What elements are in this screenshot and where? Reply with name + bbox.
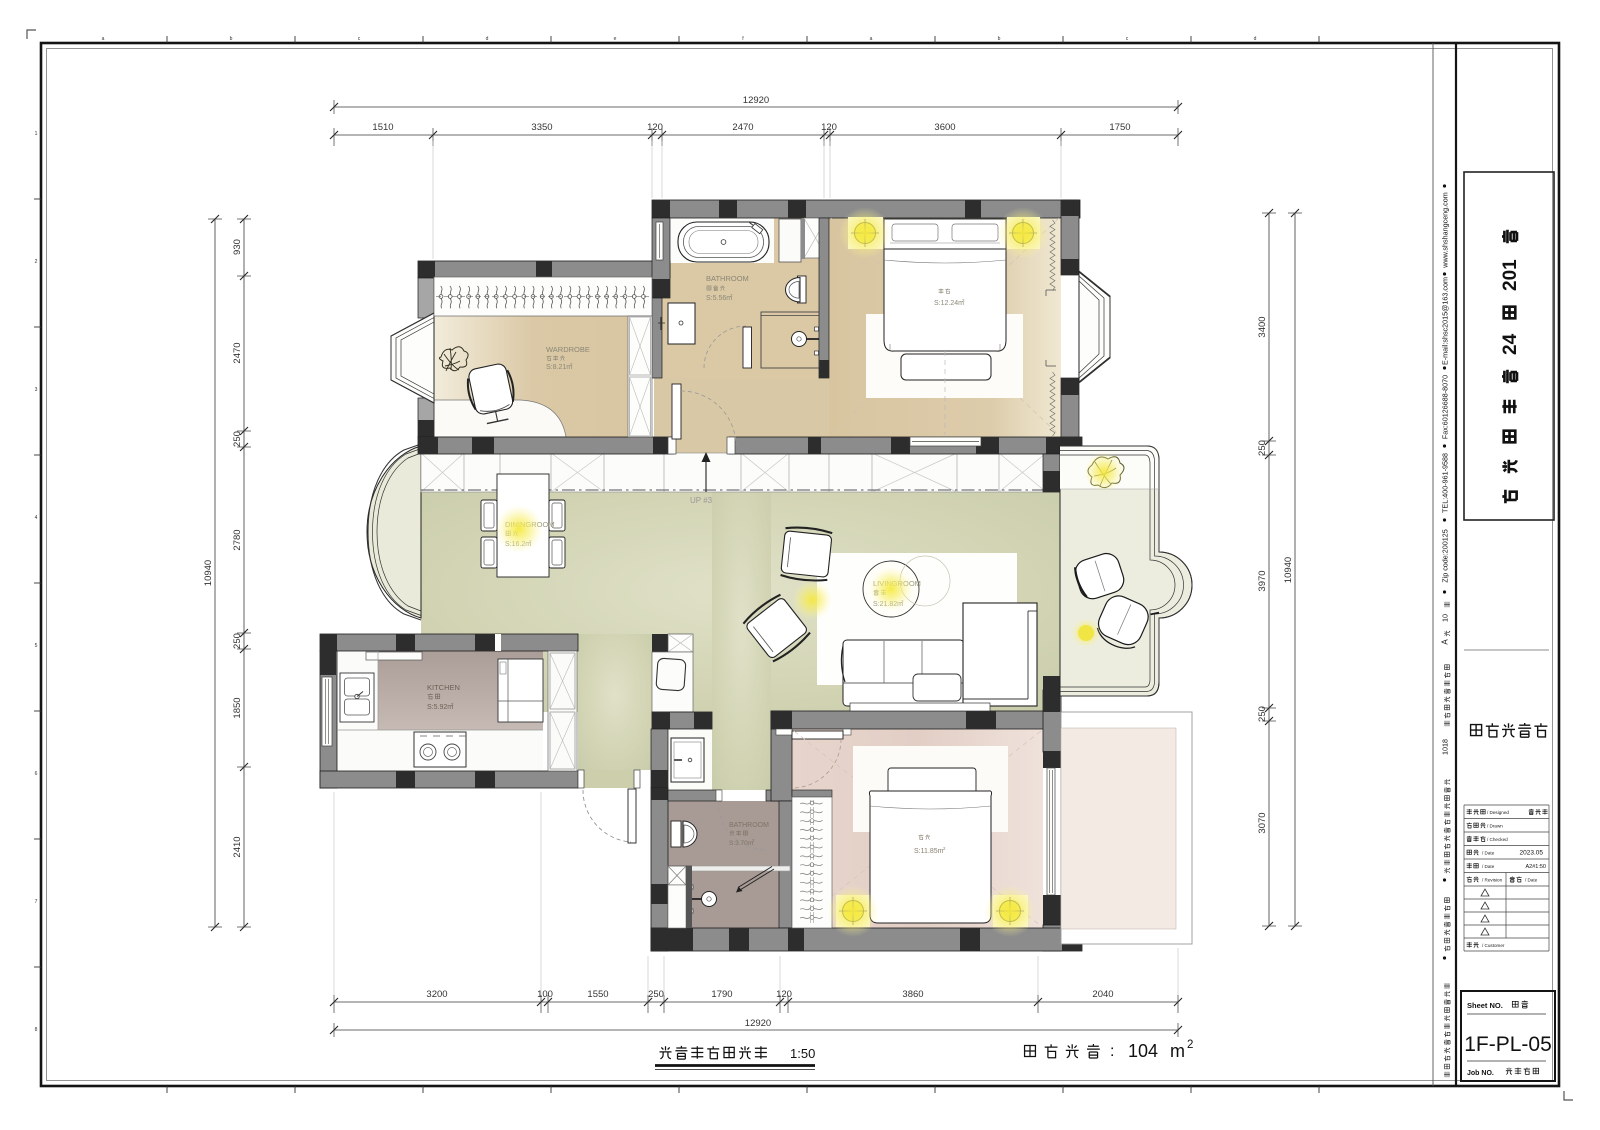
svg-text:2470: 2470 — [232, 342, 243, 363]
svg-text:2410: 2410 — [232, 836, 243, 857]
svg-text:S:5.92m: S:5.92m — [427, 704, 453, 711]
svg-text:A2#1:50: A2#1:50 — [1526, 864, 1547, 870]
svg-text:/ Revision: / Revision — [1482, 878, 1503, 883]
svg-text:A: A — [1441, 639, 1450, 645]
svg-text:3070: 3070 — [1257, 812, 1268, 833]
svg-text:10940: 10940 — [1283, 557, 1294, 583]
svg-text:/ Designed: / Designed — [1487, 810, 1509, 815]
svg-text:S:8.21m: S:8.21m — [546, 364, 572, 371]
svg-text:12920: 12920 — [743, 95, 769, 106]
svg-text:2023.05: 2023.05 — [1520, 850, 1544, 857]
svg-text:1850: 1850 — [232, 697, 243, 718]
svg-text:2780: 2780 — [232, 529, 243, 550]
svg-text:1550: 1550 — [587, 989, 608, 1000]
svg-text:104: 104 — [1128, 1041, 1158, 1061]
svg-text:S:12.24m: S:12.24m — [934, 300, 964, 307]
svg-text:/ Date: / Date — [1482, 864, 1495, 869]
svg-text:6: 6 — [35, 771, 38, 777]
svg-text:24: 24 — [1500, 333, 1521, 355]
svg-text:930: 930 — [232, 239, 243, 255]
svg-text:/ Drawn: / Drawn — [1487, 824, 1503, 829]
svg-text:S:5.56m: S:5.56m — [706, 295, 732, 302]
svg-text:1510: 1510 — [372, 122, 393, 133]
svg-text:WARDROBE: WARDROBE — [546, 345, 590, 354]
svg-text:2470: 2470 — [732, 122, 753, 133]
svg-text:Job NO.: Job NO. — [1467, 1070, 1494, 1077]
svg-text:Zip code:200125: Zip code:200125 — [1441, 529, 1450, 583]
svg-text:1:50: 1:50 — [790, 1046, 815, 1061]
svg-text:1750: 1750 — [1109, 122, 1130, 133]
svg-text::: : — [1110, 1043, 1114, 1060]
svg-text:S:3.70m: S:3.70m — [729, 840, 753, 847]
svg-text:TEL:400-961-9588: TEL:400-961-9588 — [1441, 453, 1450, 513]
svg-text:4: 4 — [35, 515, 38, 521]
svg-text:b: b — [230, 36, 233, 42]
svg-text:100: 100 — [537, 989, 553, 1000]
svg-text:www.shshangceng.com: www.shshangceng.com — [1441, 192, 1450, 269]
svg-text:BATHROOM: BATHROOM — [706, 274, 749, 283]
svg-text:a: a — [870, 36, 873, 42]
svg-text:1: 1 — [35, 131, 38, 137]
svg-text:Fax:60126688-8070: Fax:60126688-8070 — [1441, 375, 1450, 439]
svg-text:S:11.85m: S:11.85m — [914, 848, 944, 855]
svg-text:b: b — [998, 36, 1001, 42]
svg-text:KITCHEN: KITCHEN — [427, 683, 460, 692]
svg-text:250: 250 — [1257, 706, 1268, 722]
svg-text:120: 120 — [821, 122, 837, 133]
svg-text:1790: 1790 — [711, 989, 732, 1000]
svg-text:d: d — [486, 36, 489, 42]
svg-text:10940: 10940 — [203, 560, 214, 586]
svg-text:a: a — [102, 36, 105, 42]
svg-text:3350: 3350 — [531, 122, 552, 133]
svg-text:/ Date: / Date — [1525, 878, 1538, 883]
svg-text:e: e — [614, 36, 617, 42]
svg-text:3600: 3600 — [934, 122, 955, 133]
svg-text:2: 2 — [35, 259, 38, 265]
svg-text:2: 2 — [1187, 1039, 1193, 1051]
svg-text:1018: 1018 — [1441, 739, 1450, 755]
svg-text:120: 120 — [647, 122, 663, 133]
svg-text:UP #3: UP #3 — [690, 496, 713, 505]
svg-text:8: 8 — [35, 1027, 38, 1033]
svg-text:/ Checked: / Checked — [1487, 837, 1508, 842]
svg-text:2040: 2040 — [1092, 989, 1113, 1000]
svg-text:1F-PL-05: 1F-PL-05 — [1464, 1033, 1552, 1056]
svg-text:E-mail:shsc2015@163.com: E-mail:shsc2015@163.com — [1441, 277, 1450, 365]
svg-text:3200: 3200 — [426, 989, 447, 1000]
svg-text:/ Date: / Date — [1482, 851, 1495, 856]
svg-text:201: 201 — [1500, 259, 1521, 291]
svg-text:3: 3 — [35, 387, 38, 393]
svg-text:m: m — [1170, 1041, 1185, 1061]
svg-text:250: 250 — [232, 431, 243, 447]
svg-text:BATHROOM: BATHROOM — [729, 822, 769, 829]
svg-text:250: 250 — [232, 633, 243, 649]
svg-text:10: 10 — [1441, 614, 1450, 622]
svg-text:250: 250 — [1257, 440, 1268, 456]
svg-text:3970: 3970 — [1257, 570, 1268, 591]
svg-text:12920: 12920 — [745, 1018, 771, 1029]
svg-text:250: 250 — [648, 989, 664, 1000]
svg-text:5: 5 — [35, 643, 38, 649]
svg-text:Sheet NO.: Sheet NO. — [1467, 1001, 1503, 1010]
svg-text:3860: 3860 — [902, 989, 923, 1000]
svg-text:120: 120 — [776, 989, 792, 1000]
svg-text:7: 7 — [35, 899, 38, 905]
svg-text:/ Customer: / Customer — [1482, 943, 1505, 948]
svg-text:3400: 3400 — [1257, 316, 1268, 337]
svg-text:d: d — [1254, 36, 1257, 42]
